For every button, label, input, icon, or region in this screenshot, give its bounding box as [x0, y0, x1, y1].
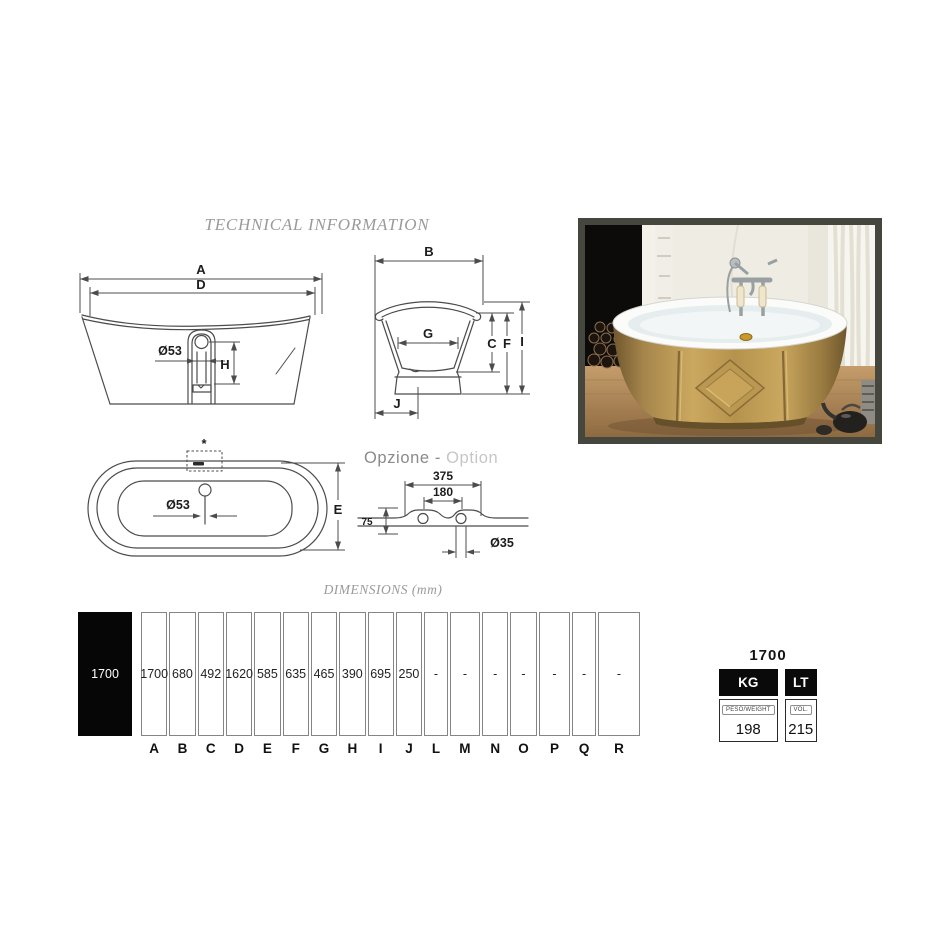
table-value: 390 [339, 612, 365, 736]
table-value: 695 [368, 612, 394, 736]
weight-label: PESO/WEIGHT [722, 705, 775, 715]
table-value: 1620 [226, 612, 252, 736]
page-title: TECHNICAL INFORMATION [157, 215, 477, 235]
table-value: - [539, 612, 571, 736]
table-letter: Q [572, 736, 596, 760]
spec-weight-column: KG PESO/WEIGHT 198 [719, 669, 778, 742]
table-letter: G [311, 736, 337, 760]
svg-text:75: 75 [361, 517, 373, 528]
table-column-f: 635 F [283, 612, 309, 760]
table-letter: J [396, 736, 422, 760]
top-view-drawing: * Ø53 E [85, 438, 353, 576]
front-view-tub-outline [82, 315, 310, 404]
table-column-b: 680 B [169, 612, 195, 760]
spec-volume-column: LT VOL. 215 [785, 669, 817, 742]
svg-text:B: B [424, 244, 433, 259]
table-column-c: 492 C [198, 612, 224, 760]
table-value: - [482, 612, 508, 736]
table-column-m: - M [450, 612, 480, 760]
top-view-tub-outline [88, 461, 327, 556]
table-column-o: - O [510, 612, 536, 760]
side-view-tub-outline [375, 302, 480, 394]
svg-text:E: E [334, 502, 343, 517]
table-value: - [450, 612, 480, 736]
dimensions-table: 1700 1700 A 680 B 492 C 1620 D 585 E [78, 612, 640, 760]
table-columns: 1700 A 680 B 492 C 1620 D 585 E 635 F [141, 612, 640, 760]
svg-text:Ø53: Ø53 [158, 344, 182, 358]
side-view-dim-g: G [398, 326, 458, 349]
table-letter: L [424, 736, 448, 760]
top-view-dim-e: E [281, 463, 345, 550]
volume-unit-header: LT [785, 669, 817, 696]
table-value: 250 [396, 612, 422, 736]
weight-value: 198 [722, 721, 775, 738]
technical-sheet: TECHNICAL INFORMATION A [0, 0, 950, 950]
table-letter: C [198, 736, 224, 760]
weight-value-box: PESO/WEIGHT 198 [719, 699, 778, 742]
table-value: - [572, 612, 596, 736]
table-column-g: 465 G [311, 612, 337, 760]
table-column-e: 585 E [254, 612, 280, 760]
option-profile-outline [358, 510, 528, 526]
table-letter: R [598, 736, 640, 760]
table-value: 635 [283, 612, 309, 736]
table-column-n: - N [482, 612, 508, 760]
front-view-dim-d: D [90, 277, 315, 316]
table-letter: D [226, 736, 252, 760]
table-letter: A [141, 736, 167, 760]
svg-text:C: C [487, 336, 497, 351]
weight-unit-header: KG [719, 669, 778, 696]
table-value: 492 [198, 612, 224, 736]
option-dim-180: 180 [424, 485, 462, 509]
table-column-a: 1700 A [141, 612, 167, 760]
svg-text:I: I [520, 334, 524, 349]
svg-text:F: F [503, 336, 511, 351]
svg-text:H: H [220, 357, 229, 372]
table-column-l: - L [424, 612, 448, 760]
top-view-option-plate: * [187, 438, 222, 471]
table-letter: O [510, 736, 536, 760]
table-model-cell: 1700 [78, 612, 132, 736]
table-value: 1700 [141, 612, 167, 736]
table-value: - [510, 612, 536, 736]
photo-drain-cap [740, 334, 752, 341]
table-value: 465 [311, 612, 337, 736]
table-column-q: - Q [572, 612, 596, 760]
front-view-dim-h: H [209, 342, 240, 384]
svg-text:180: 180 [433, 485, 453, 499]
option-dim-hole: Ø35 [442, 526, 514, 558]
table-letter: E [254, 736, 280, 760]
option-dim-75: 75 [361, 508, 398, 534]
table-column-j: 250 J [396, 612, 422, 760]
table-value: 585 [254, 612, 280, 736]
table-column-d: 1620 D [226, 612, 252, 760]
table-letter: N [482, 736, 508, 760]
volume-label: VOL. [790, 705, 812, 715]
svg-text:Ø53: Ø53 [166, 498, 190, 512]
table-column-i: 695 I [368, 612, 394, 760]
option-heading-italian: Opzione - [364, 449, 441, 467]
option-drawing: 375 180 75 Ø35 [356, 468, 532, 565]
top-view-drain-dim: Ø53 [153, 498, 237, 519]
side-view-drawing: B G C F I J [354, 241, 536, 423]
svg-text:J: J [393, 396, 400, 411]
table-letter: F [283, 736, 309, 760]
volume-value-box: VOL. 215 [785, 699, 817, 742]
svg-text:375: 375 [433, 469, 453, 483]
svg-text:*: * [201, 438, 207, 451]
spec-model: 1700 [719, 647, 817, 664]
table-letter: I [368, 736, 394, 760]
product-photo [578, 218, 882, 444]
table-letter: B [169, 736, 195, 760]
option-heading: Opzione - Option [364, 449, 498, 468]
table-letter: P [539, 736, 571, 760]
front-view-drawing: A D Ø53 H [73, 256, 343, 424]
svg-text:G: G [423, 326, 433, 341]
table-column-p: - P [539, 612, 571, 760]
table-column-r: - R [598, 612, 640, 760]
side-view-dim-j: J [375, 387, 418, 419]
table-letter: M [450, 736, 480, 760]
volume-value: 215 [788, 721, 814, 738]
table-value: - [424, 612, 448, 736]
option-heading-english: Option [446, 449, 498, 467]
dimensions-heading: DIMENSIONS (mm) [283, 582, 483, 598]
table-value: 680 [169, 612, 195, 736]
svg-text:D: D [196, 277, 205, 292]
svg-text:Ø35: Ø35 [490, 536, 514, 550]
svg-text:A: A [196, 262, 206, 277]
table-value: - [598, 612, 640, 736]
spec-box: 1700 KG PESO/WEIGHT 198 LT VOL. 215 [719, 647, 817, 742]
table-letter: H [339, 736, 365, 760]
table-column-h: 390 H [339, 612, 365, 760]
